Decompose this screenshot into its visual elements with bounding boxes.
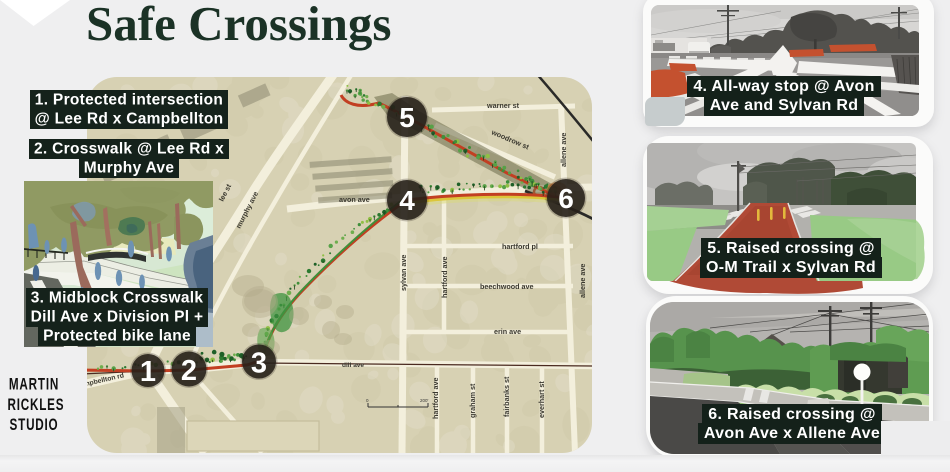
svg-text:sylvan ave: sylvan ave (399, 255, 408, 291)
svg-text:hartford ave: hartford ave (431, 377, 440, 419)
svg-text:warner st: warner st (486, 101, 520, 110)
svg-text:allene ave: allene ave (559, 133, 568, 167)
svg-text:5: 5 (399, 102, 415, 133)
svg-text:6: 6 (558, 183, 574, 214)
svg-text:hartford ave: hartford ave (440, 256, 449, 298)
svg-text:everhart st: everhart st (537, 381, 546, 418)
svg-text:graham st: graham st (468, 383, 477, 418)
svg-text:3: 3 (251, 348, 267, 380)
svg-text:beechwood ave: beechwood ave (480, 282, 534, 291)
svg-text:hartford pl: hartford pl (502, 242, 538, 251)
svg-text:fairbanks st: fairbanks st (502, 376, 511, 417)
svg-text:1: 1 (140, 356, 156, 388)
svg-text:erin ave: erin ave (494, 327, 521, 336)
svg-text:allene ave: allene ave (578, 264, 587, 298)
svg-text:4: 4 (399, 185, 415, 216)
svg-text:2: 2 (181, 355, 197, 387)
svg-text:avon ave: avon ave (339, 195, 370, 204)
svg-text:200': 200' (420, 398, 429, 403)
svg-text:dill ave: dill ave (342, 362, 364, 369)
